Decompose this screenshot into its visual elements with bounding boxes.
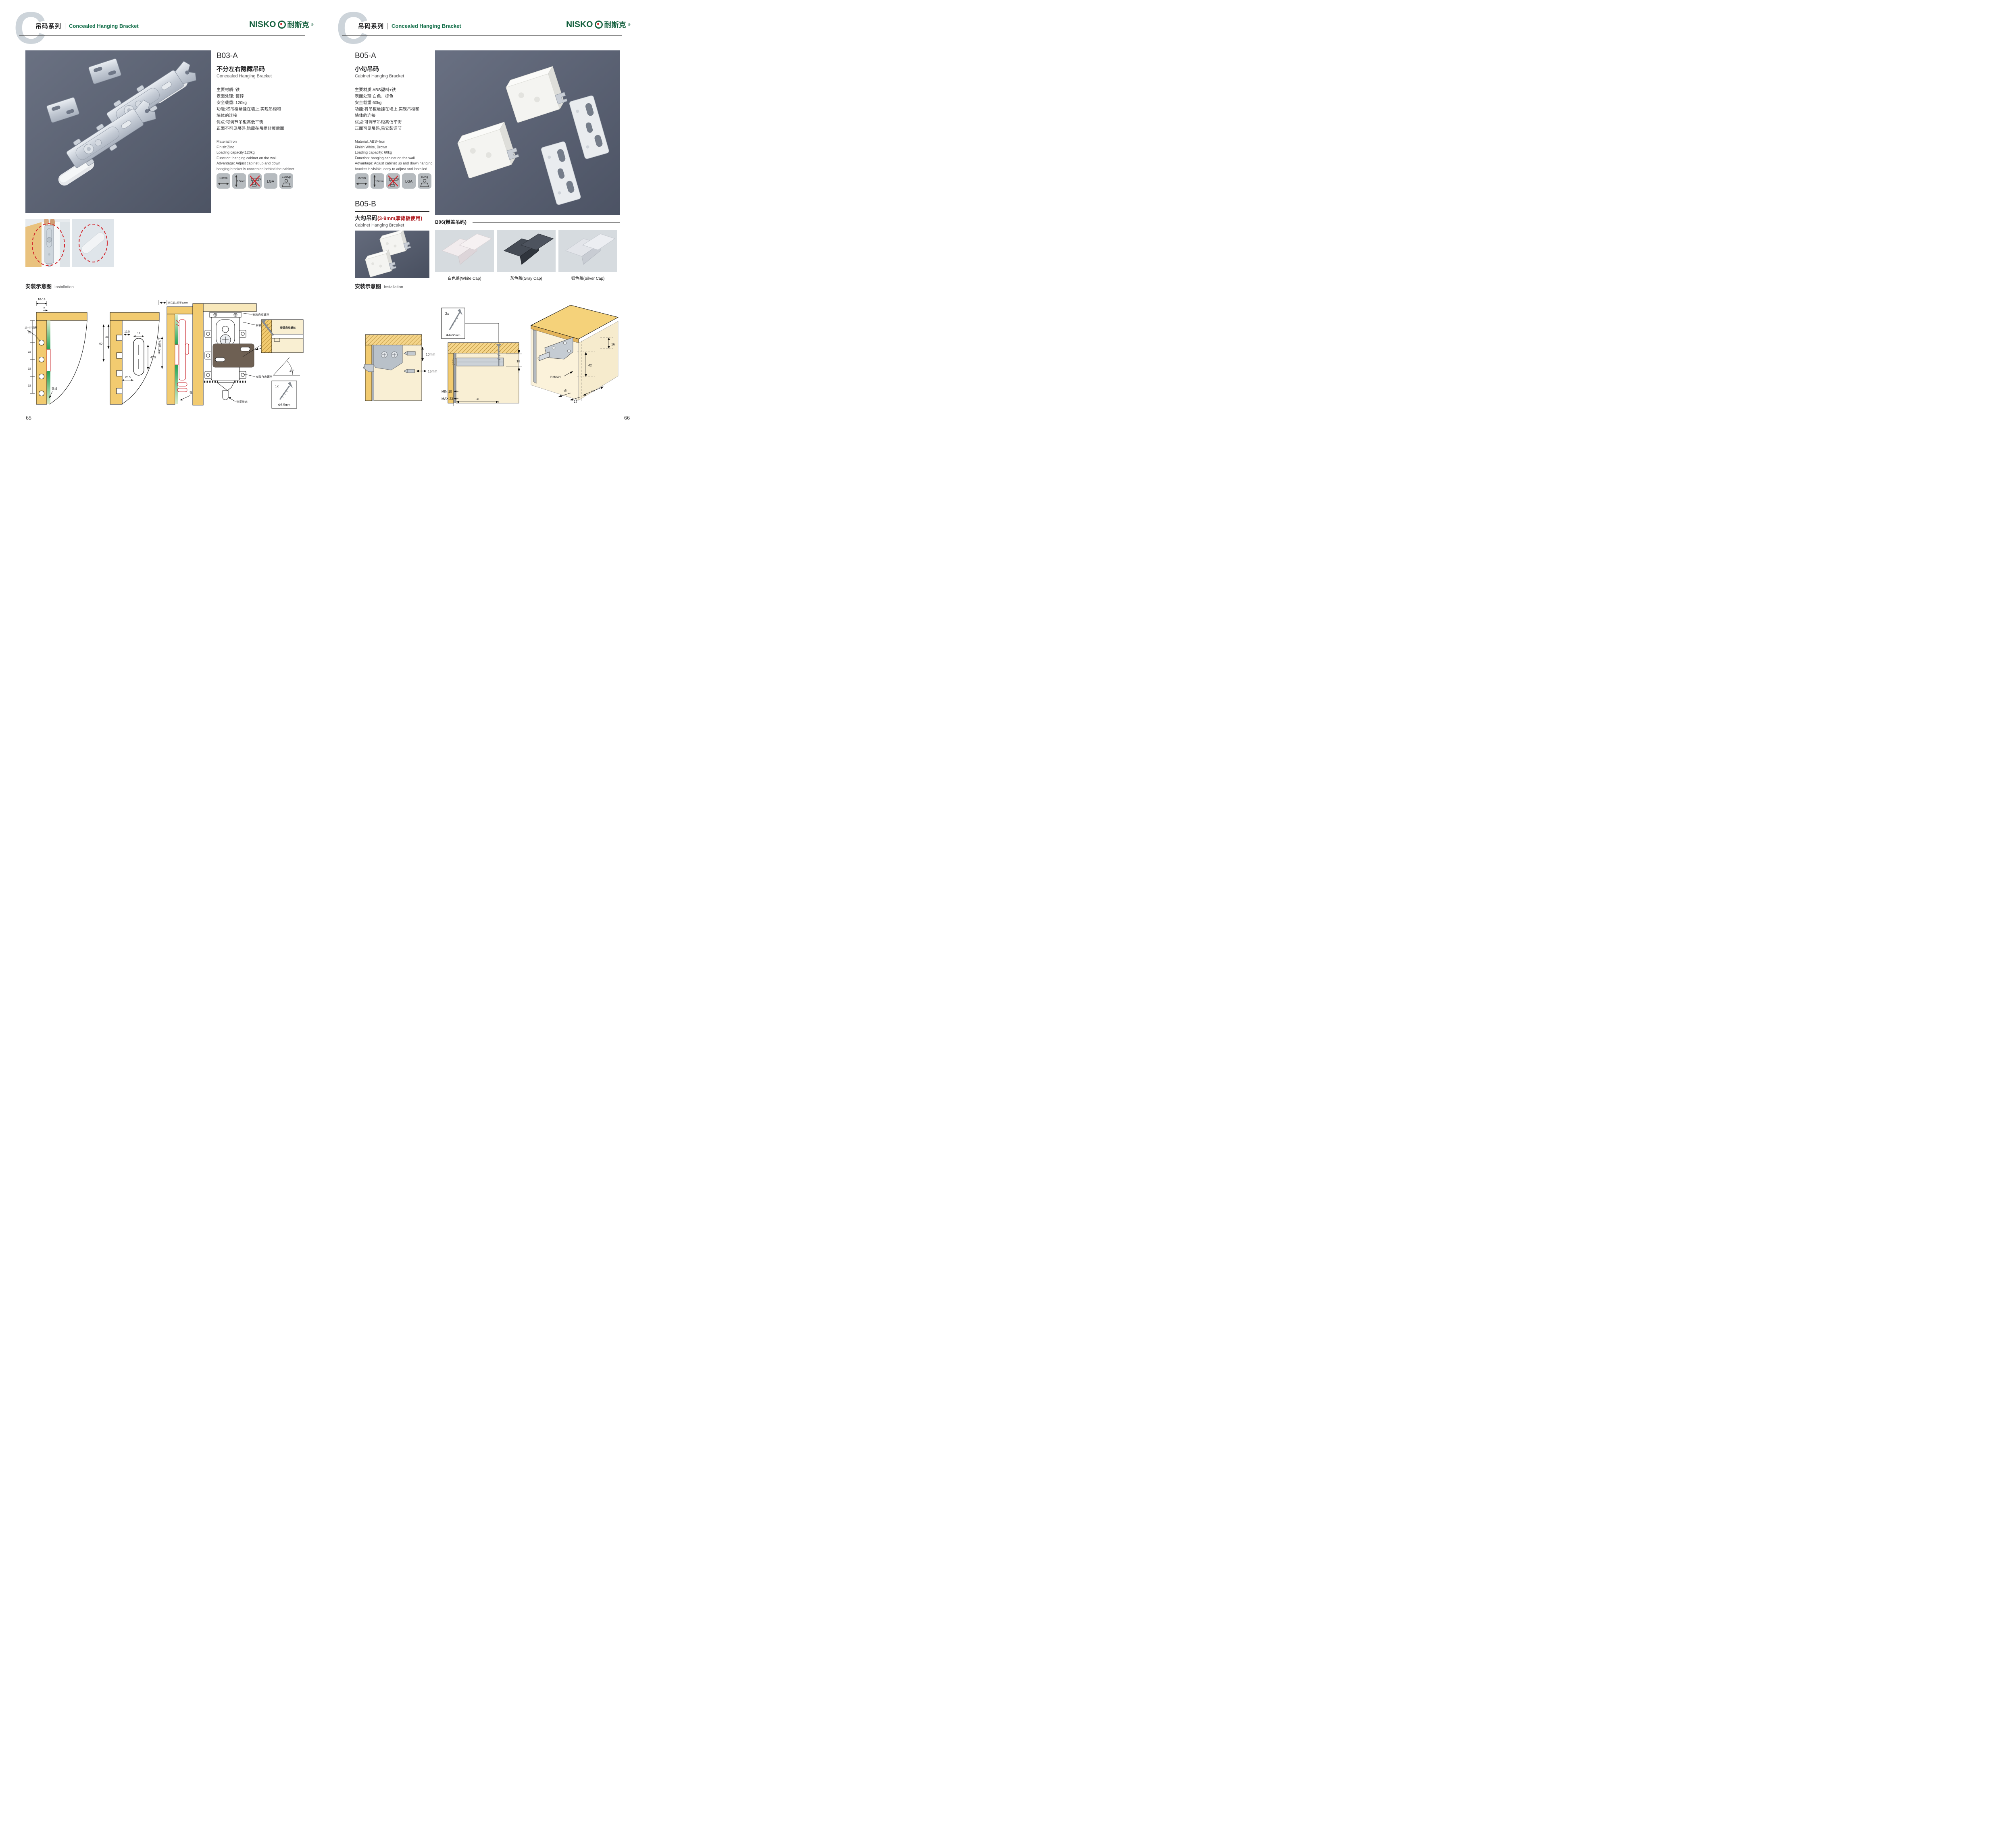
- b03a-code: B03-A: [217, 52, 238, 60]
- spec-line: Function: hanging cabinet on the wall: [355, 156, 442, 161]
- width-adjust-icon: 15mm: [355, 173, 369, 189]
- svg-text:5: 5: [44, 307, 45, 310]
- catalog-spread: C 吊码系列 Concealed Hanging Bracket NISKO 耐…: [0, 0, 645, 441]
- svg-text:12: 12: [137, 332, 140, 335]
- b03a-icon-row: 10mm 10mm LGA: [217, 173, 293, 189]
- spec-line: 主要材质: 铁: [217, 87, 299, 94]
- load-capacity-icon: 60Kg: [418, 173, 431, 189]
- svg-text:1x: 1x: [275, 384, 279, 388]
- b05a-product-photo: [435, 50, 620, 215]
- svg-text:20.5: 20.5: [125, 376, 131, 379]
- b05b-name-line: 大勾吊码 (3-9mm厚背板使用): [355, 214, 422, 222]
- b06-silver-cap-photo: [558, 230, 617, 272]
- installation-heading-left: 安装示意图 Installation: [25, 282, 74, 290]
- b03a-specs-en: Material:Iron Finish:Zinc Loading capaci…: [217, 139, 301, 172]
- svg-text:45°: 45°: [289, 369, 294, 373]
- svg-text:35: 35: [28, 331, 31, 334]
- b06-white-cap-photo: [435, 230, 494, 272]
- diagram-bracket-section: 10mm 15mm: [362, 331, 439, 409]
- brand-logo: NISKO 耐斯克 ®: [566, 19, 630, 30]
- spec-line: 功能:将吊柜悬挂在墙上,实现吊柜和: [355, 106, 437, 113]
- spec-line: 主要材质:ABS塑料+铁: [355, 87, 437, 94]
- b06-gray-cap-photo: [497, 230, 556, 272]
- b03a-product-photo: [25, 50, 211, 213]
- header-divider: [65, 23, 65, 29]
- svg-text:12.5: 12.5: [124, 331, 130, 333]
- svg-text:LGA: LGA: [267, 179, 274, 183]
- b05b-name-en: Cabinet Hanging Brcaket: [355, 223, 404, 228]
- installation-en: Installation: [54, 285, 74, 289]
- brand-logo-zh: 耐斯克: [604, 19, 626, 30]
- b05a-code: B05-A: [355, 52, 376, 60]
- page-number-left: 65: [26, 415, 31, 422]
- diagram-3d-cabinet: 16 42 RMAX4 16 17 32: [525, 300, 622, 411]
- b03a-name-zh: 不分左右隐藏吊码: [217, 64, 297, 73]
- brand-logo-o-icon: [595, 21, 603, 29]
- page-header-left: 吊码系列 Concealed Hanging Bracket: [35, 22, 139, 30]
- spec-line: Loading capacity:120kg: [217, 150, 301, 156]
- svg-text:前后最大调节10mm: 前后最大调节10mm: [168, 301, 188, 304]
- svg-text:35: 35: [105, 336, 108, 339]
- b06-label: B06(带盖吊码): [435, 218, 467, 225]
- b05b-name-zh: 大勾吊码: [355, 214, 377, 222]
- svg-text:10-4个均布: 10-4个均布: [25, 326, 37, 329]
- svg-text:17: 17: [574, 400, 577, 404]
- width-adjust-icon: 10mm: [217, 173, 230, 189]
- brand-reg-mark: ®: [311, 23, 314, 27]
- installation-heading-right: 安装示意图 Installation: [355, 282, 403, 290]
- b03a-names: 不分左右隐藏吊码 Concealed Hanging Bracket: [217, 64, 297, 79]
- spec-line: Loading capacity: 60kg: [355, 150, 442, 156]
- svg-text:MIN.10: MIN.10: [442, 390, 452, 393]
- b05a-icon-row: 15mm 10mm LGA: [355, 173, 431, 189]
- b05b-name-note: (3-9mm厚背板使用): [377, 214, 422, 222]
- svg-text:安装自攻螺丝: 安装自攻螺丝: [256, 375, 273, 379]
- installation-zh: 安装示意图: [355, 282, 381, 290]
- spec-line: 正面可见吊码,易安装调节: [355, 126, 437, 132]
- brand-logo-o-icon: [278, 21, 286, 29]
- diagram-screw-section: 2x Φ4×30mm 18 MIN.10 MAX.23 58: [437, 306, 524, 410]
- b05a-specs-en: Material: ABS+Iron Finish:White, Brown L…: [355, 139, 442, 172]
- b03a-install-thumb: [25, 219, 70, 267]
- spec-line: 优点:可调节吊柜高低平衡: [355, 119, 437, 126]
- spec-line: 表面处理:白色、棕色: [355, 94, 437, 100]
- b06-rule: [473, 222, 620, 223]
- b05b-product-photo: [355, 231, 429, 278]
- spec-line: Finish:White, Brown: [355, 145, 442, 150]
- svg-text:58: 58: [476, 397, 479, 401]
- svg-text:42: 42: [588, 364, 592, 367]
- header-rule-left: [19, 35, 305, 36]
- svg-text:32: 32: [28, 368, 31, 370]
- height-adjust-icon: 10mm: [371, 173, 384, 189]
- lga-cert-icon: LGA: [402, 173, 416, 189]
- svg-text:10mm: 10mm: [426, 352, 435, 356]
- svg-text:10mm: 10mm: [375, 179, 384, 183]
- spec-line: 安全载重:60kg: [355, 100, 437, 106]
- spec-line: Advantage: Adjust cabinet up and down ha…: [355, 161, 442, 166]
- lga-cert-icon: LGA: [264, 173, 277, 189]
- svg-text:2x: 2x: [445, 312, 449, 316]
- b03a-specs-zh: 主要材质: 铁 表面处理: 镀锌 安全载重: 120kg 功能:将吊柜悬挂在墙上…: [217, 87, 299, 132]
- brand-logo-en: NISKO: [249, 20, 276, 29]
- svg-text:RMAX4: RMAX4: [550, 375, 561, 379]
- svg-text:120Kg: 120Kg: [282, 175, 291, 179]
- svg-text:16-18: 16-18: [37, 297, 45, 301]
- svg-text:32: 32: [28, 385, 31, 387]
- svg-text:MAX.23: MAX.23: [442, 397, 453, 401]
- spec-line: Material: ABS+Iron: [355, 139, 442, 145]
- svg-text:15mm: 15mm: [358, 176, 366, 180]
- page-number-right: 66: [624, 415, 630, 422]
- svg-text:32: 32: [28, 351, 31, 354]
- svg-text:42.5: 42.5: [150, 356, 156, 359]
- diagram-mounted-bracket: 安装自攻螺丝 安装自攻螺丝 专用挂片 安装自攻螺丝 锁紧状态 安装自攻螺丝 45…: [189, 296, 306, 411]
- no-drill-icon: [248, 173, 262, 189]
- spec-line: Advantage: Adjust cabinet up and down: [217, 161, 301, 166]
- spec-line: 墙体的连接: [217, 113, 299, 119]
- svg-text:背板: 背板: [52, 387, 57, 391]
- spec-line: hanging bracket is concealed behind the …: [217, 166, 301, 172]
- b05a-specs-zh: 主要材质:ABS塑料+铁 表面处理:白色、棕色 安全载重:60kg 功能:将吊柜…: [355, 87, 437, 132]
- header-rule-right: [342, 35, 622, 36]
- svg-text:上下调节10mm: 上下调节10mm: [158, 337, 161, 354]
- no-drill-icon: [386, 173, 400, 189]
- spec-line: Function: hanging cabinet on the wall: [217, 156, 301, 161]
- svg-text:Φ3.5mm: Φ3.5mm: [278, 403, 291, 407]
- svg-text:安装自攻螺丝: 安装自攻螺丝: [252, 313, 269, 316]
- brand-logo-en: NISKO: [566, 20, 593, 29]
- svg-text:32: 32: [591, 389, 595, 393]
- svg-text:安装自攻螺丝: 安装自攻螺丝: [280, 326, 296, 329]
- b06-cap-caption: 银色盖(Silver Cap): [558, 275, 617, 281]
- svg-text:60Kg: 60Kg: [421, 175, 428, 179]
- b05a-name-zh: 小勾吊码: [355, 64, 435, 73]
- b03a-cap-thumb: [72, 219, 114, 267]
- installation-en: Installation: [384, 285, 403, 289]
- series-title-zh: 吊码系列: [358, 22, 384, 30]
- page-header-right: 吊码系列 Concealed Hanging Bracket: [358, 22, 461, 30]
- svg-text:LGA: LGA: [405, 179, 412, 183]
- b03a-name-en: Concealed Hanging Bracket: [217, 74, 297, 79]
- load-capacity-icon: 120Kg: [279, 173, 293, 189]
- diagram-panel-drilling: 16-18 5 35 32 32 32 10-4个均布 背板: [24, 296, 93, 411]
- series-title-en: Concealed Hanging Bracket: [392, 23, 461, 29]
- b05b-code: B05-B: [355, 200, 376, 209]
- b05a-names: 小勾吊码 Cabinet Hanging Bracket: [355, 64, 435, 79]
- brand-logo-zh: 耐斯克: [287, 19, 309, 30]
- spec-line: Finish:Zinc: [217, 145, 301, 150]
- b05a-name-en: Cabinet Hanging Bracket: [355, 74, 435, 79]
- installation-zh: 安装示意图: [25, 282, 52, 290]
- spec-line: 表面处理: 镀锌: [217, 94, 299, 100]
- diagram-panel-slots: 60 35 12.5 12 42.5 20.5: [98, 296, 162, 411]
- spec-line: 正面不可见吊码,隐藏在吊柜背板后面: [217, 126, 299, 132]
- spec-line: 优点:可调节吊柜高低平衡: [217, 119, 299, 126]
- svg-text:15mm: 15mm: [428, 369, 437, 373]
- spec-line: 墙体的连接: [355, 113, 437, 119]
- spec-line: 功能:将吊柜悬挂在墙上,实现吊柜和: [217, 106, 299, 113]
- svg-text:Φ4×30mm: Φ4×30mm: [446, 333, 460, 337]
- svg-text:16: 16: [611, 343, 615, 346]
- b06-cap-caption: 灰色盖(Gray Cap): [497, 275, 556, 281]
- spec-line: bracket is visible, easy to adjust and i…: [355, 166, 442, 172]
- series-title-zh: 吊码系列: [35, 22, 61, 30]
- svg-text:10mm: 10mm: [237, 179, 246, 183]
- brand-reg-mark: ®: [628, 23, 631, 27]
- svg-text:锁紧状态: 锁紧状态: [236, 400, 248, 404]
- header-divider: [387, 23, 388, 29]
- svg-text:18: 18: [516, 360, 520, 363]
- height-adjust-icon: 10mm: [232, 173, 246, 189]
- b05b-underline: [355, 211, 429, 212]
- brand-logo: NISKO 耐斯克 ®: [249, 19, 313, 30]
- svg-text:10mm: 10mm: [219, 176, 228, 180]
- series-title-en: Concealed Hanging Bracket: [69, 23, 139, 29]
- b06-cap-caption: 白色盖(White Cap): [435, 275, 494, 281]
- spec-line: Material:Iron: [217, 139, 301, 145]
- svg-text:60: 60: [99, 343, 102, 345]
- spec-line: 安全载重: 120kg: [217, 100, 299, 106]
